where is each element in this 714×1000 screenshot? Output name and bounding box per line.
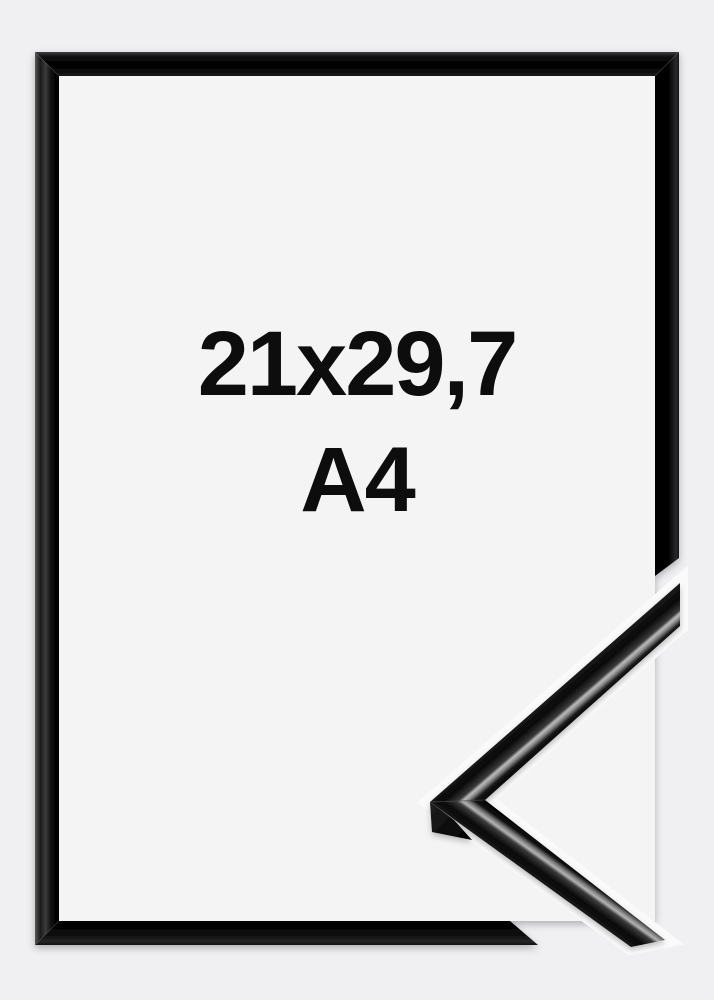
product-photo: 21x29,7 A4 — [0, 0, 714, 1000]
size-label-block: 21x29,7 A4 — [0, 306, 714, 538]
size-label: 21x29,7 — [0, 306, 714, 422]
frame-bar-bottom — [35, 921, 538, 945]
format-label: A4 — [0, 422, 714, 538]
frame-bar-top — [35, 52, 679, 76]
